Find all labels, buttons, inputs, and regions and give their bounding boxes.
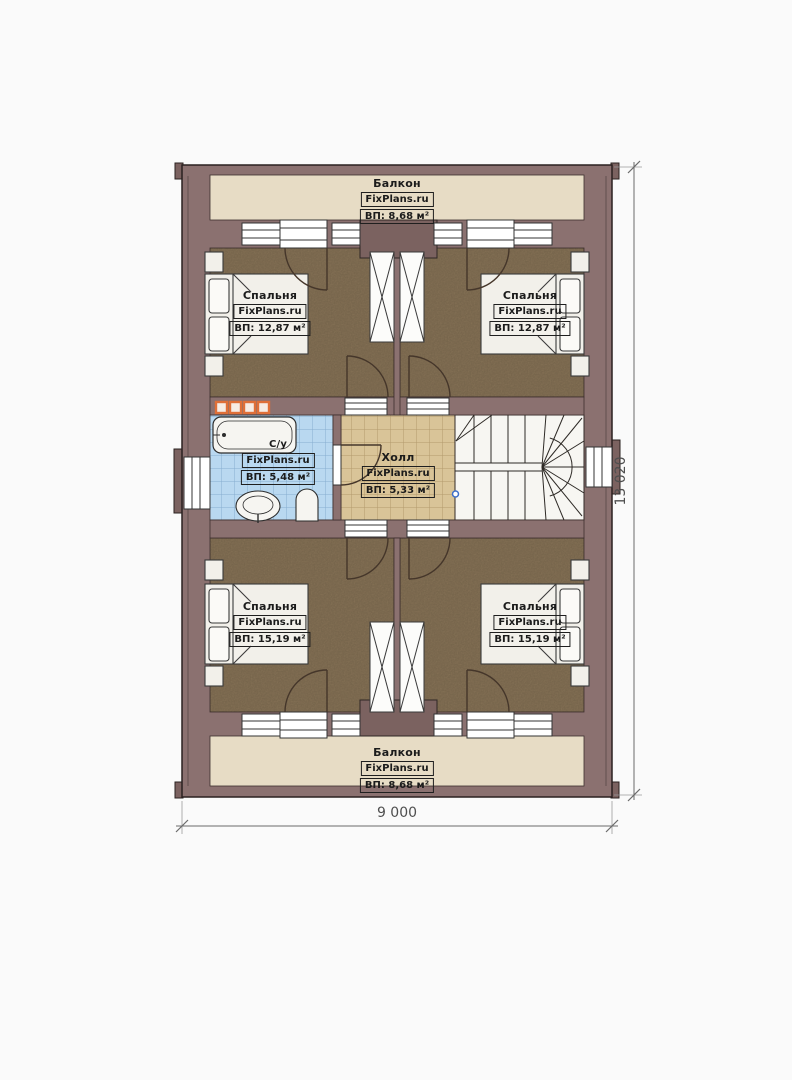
nightstand xyxy=(205,666,223,686)
wall-mid-bottom xyxy=(210,520,584,538)
balcony-door-threshold-bottom-left xyxy=(280,712,327,738)
pillow xyxy=(560,279,580,313)
pillow xyxy=(209,627,229,661)
wardrobe-bottom-left xyxy=(370,622,394,712)
balcony-door-threshold-top-left xyxy=(280,220,327,248)
floor-plan-drawing xyxy=(0,0,792,1080)
hall-door-threshold-top-left xyxy=(345,398,387,415)
nightstand xyxy=(571,252,589,272)
pillow xyxy=(209,589,229,623)
bathtub-drain xyxy=(222,433,226,437)
window-bottom-3 xyxy=(434,714,462,736)
balcony-door-threshold-top-right xyxy=(467,220,514,248)
window-left-wall xyxy=(184,457,210,509)
window-top-3 xyxy=(434,223,462,245)
nightstand xyxy=(205,356,223,376)
hall-door-threshold-top-right xyxy=(407,398,449,415)
window-top-1 xyxy=(242,223,280,245)
nightstand xyxy=(571,666,589,686)
nightstand xyxy=(571,356,589,376)
nightstand xyxy=(205,252,223,272)
nightstand xyxy=(571,560,589,580)
balcony-bottom-floor xyxy=(210,736,584,786)
window-bottom-1 xyxy=(242,714,280,736)
pillow xyxy=(209,317,229,351)
pillow xyxy=(560,317,580,351)
nightstand xyxy=(205,560,223,580)
window-top-4 xyxy=(514,223,552,245)
wardrobe-bottom-right xyxy=(400,622,424,712)
wardrobe-top-right xyxy=(400,252,424,342)
hall-floor xyxy=(341,415,455,520)
window-bottom-4 xyxy=(514,714,552,736)
balcony-door-threshold-bottom-right xyxy=(467,712,514,738)
hall-door-threshold-bottom-right xyxy=(407,520,449,537)
bathroom-door-opening xyxy=(333,445,341,485)
window-bottom-2 xyxy=(332,714,360,736)
floor-plan-page: Балкон FixPlans.ru ВП: 8,68 м² Спальня F… xyxy=(0,0,792,1080)
toilet xyxy=(296,489,318,521)
stair-marker-dot xyxy=(453,491,459,497)
bathtub xyxy=(213,417,296,453)
window-top-2 xyxy=(332,223,360,245)
window-right-wall xyxy=(586,447,612,487)
pillow xyxy=(560,589,580,623)
balcony-top-floor xyxy=(210,175,584,220)
hall-door-threshold-bottom-left xyxy=(345,520,387,537)
pillow xyxy=(560,627,580,661)
wardrobe-top-left xyxy=(370,252,394,342)
pillow xyxy=(209,279,229,313)
